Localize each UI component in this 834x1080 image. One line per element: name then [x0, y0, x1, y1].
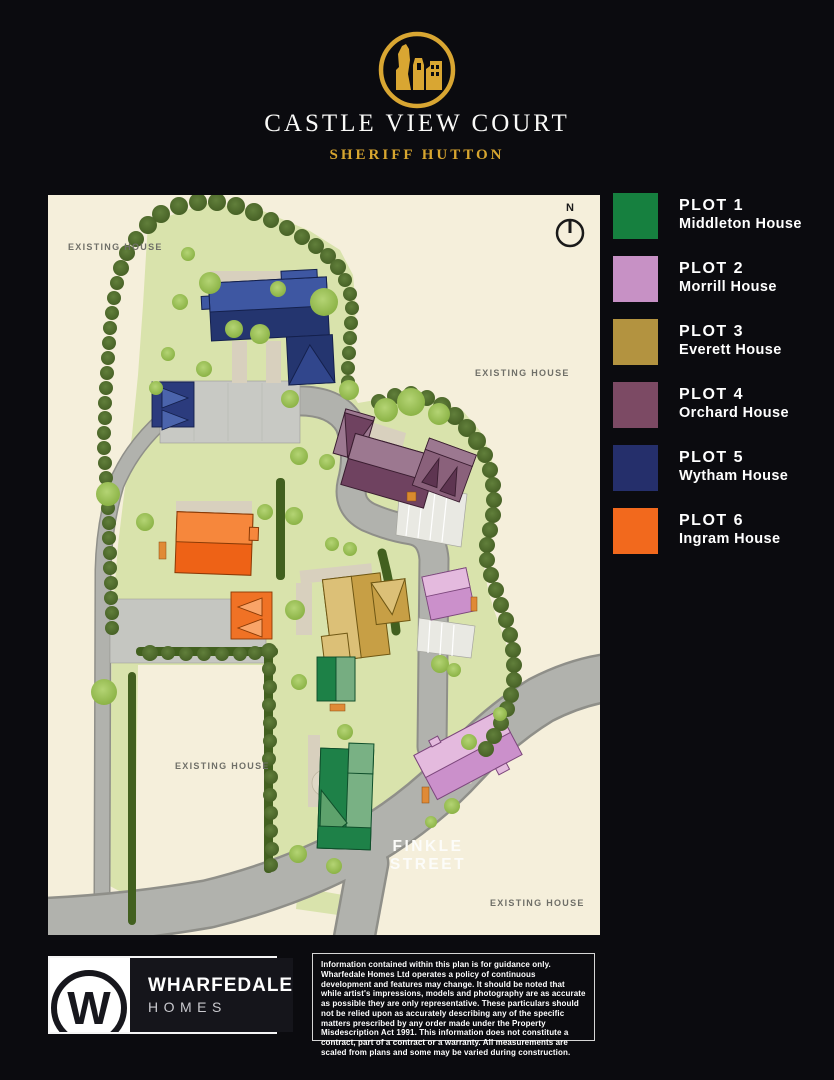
- plot6-ingram-house: [175, 512, 259, 576]
- legend-item-plot3: PLOT 3 Everett House: [613, 319, 802, 365]
- plot3-name: Everett House: [679, 341, 782, 360]
- legend-item-plot6: PLOT 6 Ingram House: [613, 508, 802, 554]
- site-plan-map: N EXISTING HOUSE EXISTING HOUSE EXISTING…: [48, 195, 600, 935]
- brand-wordmark: WHARFEDALE HOMES: [130, 958, 293, 1032]
- plot3-color-swatch: [613, 319, 658, 365]
- bin-store: [471, 597, 477, 611]
- plot6-garage: [231, 592, 272, 639]
- plot6-name: Ingram House: [679, 530, 781, 549]
- brand-name: WHARFEDALE: [148, 975, 293, 996]
- compass-north-label: N: [566, 202, 574, 214]
- bin-store: [407, 492, 416, 501]
- existing-house-label-top-left: EXISTING HOUSE: [68, 242, 163, 252]
- bin-store: [422, 787, 429, 803]
- wharfedale-monogram: W: [50, 958, 130, 1032]
- plot2-color-swatch: [613, 256, 658, 302]
- castle-logo-icon: [375, 28, 459, 112]
- wharfedale-homes-logo: W WHARFEDALE HOMES: [48, 956, 277, 1034]
- plot4-name: Orchard House: [679, 404, 789, 423]
- plot4-color-swatch: [613, 382, 658, 428]
- plot4-label: PLOT 4: [679, 385, 789, 404]
- plot5-label: PLOT 5: [679, 448, 788, 467]
- plot1-label: PLOT 1: [679, 196, 802, 215]
- street-name-line2: STREET: [390, 856, 466, 873]
- legend-item-plot2: PLOT 2 Morrill House: [613, 256, 802, 302]
- plot1-name: Middleton House: [679, 215, 802, 234]
- existing-house-label-bottom-left: EXISTING HOUSE: [175, 761, 270, 771]
- legend-item-plot4: PLOT 4 Orchard House: [613, 382, 802, 428]
- monogram-letter: W: [67, 982, 111, 1032]
- plot1-middleton-house: [317, 742, 374, 850]
- bin-store: [159, 542, 166, 559]
- plot1-garage: [317, 657, 355, 701]
- plot3-label: PLOT 3: [679, 322, 782, 341]
- existing-house-label-bottom-right: EXISTING HOUSE: [490, 898, 585, 908]
- bin-store: [330, 704, 345, 711]
- disclaimer-text: Information contained within this plan i…: [312, 953, 595, 1041]
- plot6-label: PLOT 6: [679, 511, 781, 530]
- page-title: CASTLE VIEW COURT: [0, 110, 834, 138]
- legend-item-plot1: PLOT 1 Middleton House: [613, 193, 802, 239]
- existing-house-label-right: EXISTING HOUSE: [475, 368, 570, 378]
- page: CASTLE VIEW COURT SHERIFF HUTTON: [0, 0, 834, 1080]
- plot5-color-swatch: [613, 445, 658, 491]
- page-subtitle: SHERIFF HUTTON: [0, 147, 834, 164]
- street-name-line1: FINKLE: [393, 838, 464, 855]
- plot6-color-swatch: [613, 508, 658, 554]
- brand-type: HOMES: [148, 998, 293, 1016]
- plot-legend: PLOT 1 Middleton House PLOT 2 Morrill Ho…: [613, 193, 802, 571]
- plot2-garage: [422, 568, 475, 620]
- plot2-name: Morrill House: [679, 278, 777, 297]
- plot5-name: Wytham House: [679, 467, 788, 486]
- plot2-label: PLOT 2: [679, 259, 777, 278]
- site-plan-svg: N EXISTING HOUSE EXISTING HOUSE EXISTING…: [48, 195, 600, 935]
- legend-item-plot5: PLOT 5 Wytham House: [613, 445, 802, 491]
- plot1-color-swatch: [613, 193, 658, 239]
